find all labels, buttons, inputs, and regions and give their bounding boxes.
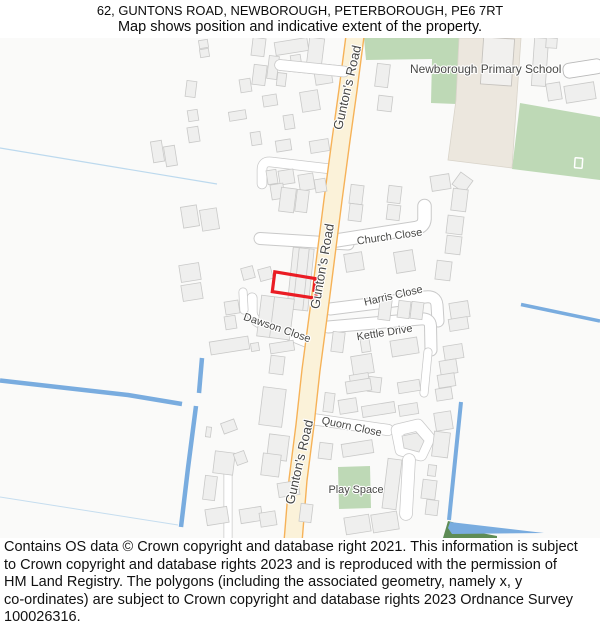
svg-text:Newborough Primary School: Newborough Primary School	[410, 62, 561, 76]
svg-text:Play Space: Play Space	[328, 484, 383, 496]
